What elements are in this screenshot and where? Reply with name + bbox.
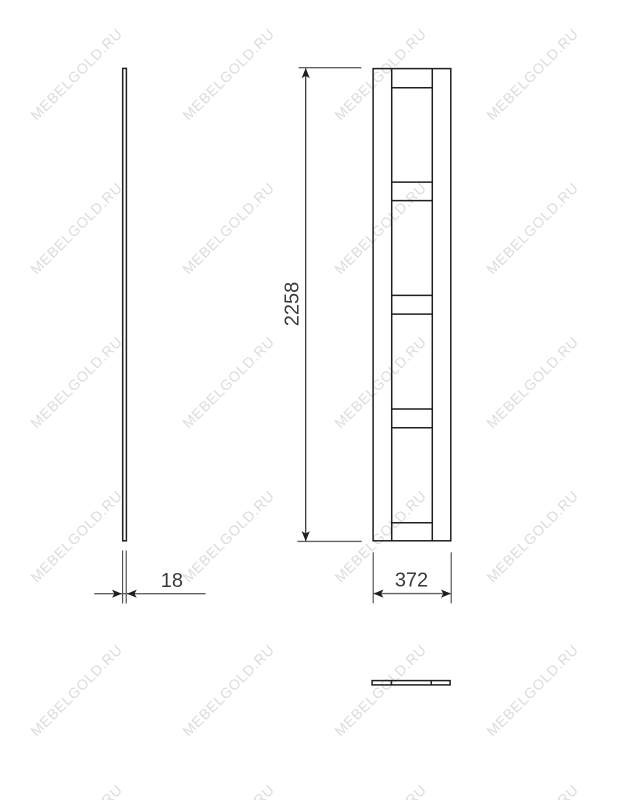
svg-text:2258: 2258 [282,282,304,327]
svg-text:372: 372 [395,569,428,591]
svg-text:18: 18 [161,570,183,592]
